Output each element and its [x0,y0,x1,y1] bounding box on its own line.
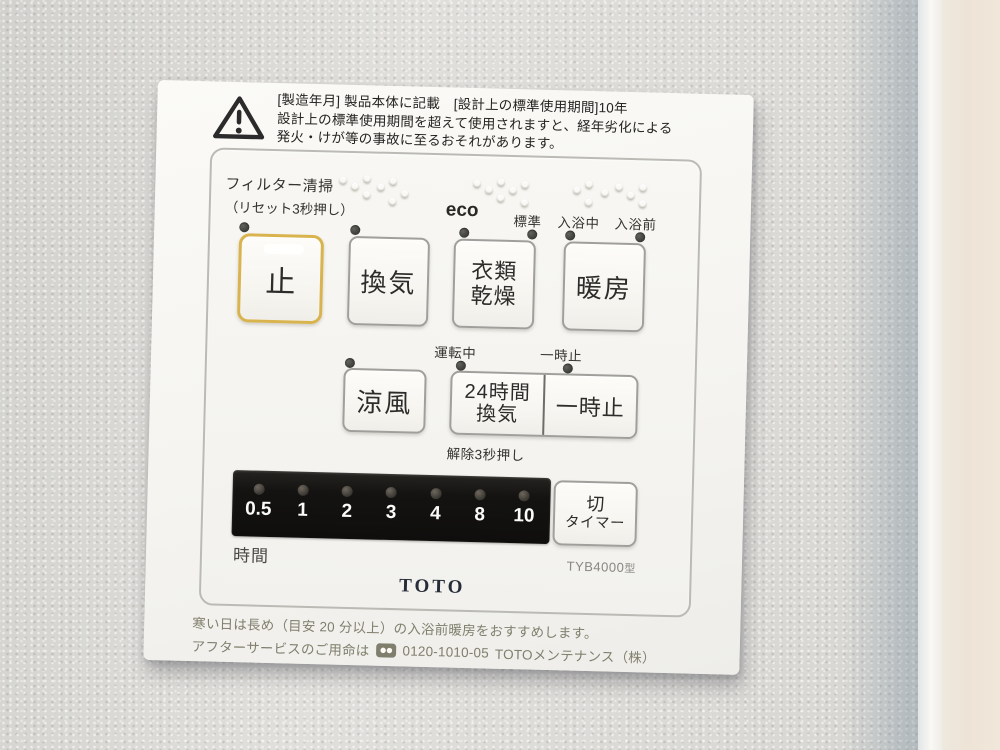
timer-cell: 10 [501,477,547,544]
braille-dot [377,184,384,191]
braille-dot [389,178,396,185]
timer-led-2h [342,486,353,497]
timer-cell: 4 [413,475,459,542]
door-trim [918,0,942,750]
pause-label: 一時止 [540,344,582,365]
pause-button[interactable]: 一時止 [542,375,636,437]
ventilation-24h-pause-button-group: 24時間 換気 一時止 [449,371,639,440]
braille-dot [389,198,396,205]
mode-bathing-label: 入浴中 [557,211,599,232]
timer-off-label-2: タイマー [565,514,625,533]
running-led [456,361,466,371]
mode-standard-label: 標準 [513,210,541,231]
ventilation-24h-label-1: 24時間 [464,380,531,404]
braille-dot [521,181,528,188]
braille-dot [473,180,480,187]
cool-breeze-led [345,358,355,368]
stop-button[interactable]: 止 [237,233,324,324]
braille-dot [401,190,408,197]
release-hint-label: 解除3秒押し [446,442,524,464]
braille-dot [615,184,622,191]
timer-value: 8 [474,504,485,526]
eco-led [459,228,469,238]
timer-cell: 2 [324,472,370,539]
door-edge [942,0,1000,750]
lifespan-warning-text: [製造年月] 製品本体に記載 [設計上の標準使用期間]10年 設計上の標準使用期… [276,91,737,158]
timer-value: 4 [430,503,441,525]
braille-dot [497,179,504,186]
hours-unit-label: 時間 [233,541,270,567]
ventilation-led [350,225,360,235]
timer-cell: 8 [457,476,503,543]
timer-led-3h [386,487,397,498]
timer-value: 1 [297,500,308,522]
timer-value: 2 [341,501,352,523]
ventilation-button[interactable]: 換気 [347,236,430,327]
footer-phone-number: 0120-1010-05 [402,643,489,660]
braille-dot [601,189,608,196]
braille-dot [363,175,370,182]
timer-led-0.5h [253,484,264,495]
braille-dot [639,200,646,207]
braille-dot [497,195,504,202]
braille-dot [363,191,370,198]
timer-cell: 0.5 [235,470,281,537]
filter-clean-label: フィルター清掃 （リセット3秒押し） [225,173,355,219]
heating-button[interactable]: 暖房 [562,241,646,332]
timer-led-4h [430,488,441,499]
freephone-icon [375,642,396,658]
model-number: TYB4000型 [532,558,636,577]
footer-service-suffix: TOTOメンテナンス（株） [495,643,656,667]
ventilation-24h-label-2: 換気 [476,403,519,426]
timer-cell: 1 [280,471,326,538]
clothes-drying-label-1: 衣類 [471,259,518,285]
timer-led-1h [297,485,308,496]
timer-display-bar: 0.5 1 2 3 4 8 [231,470,551,544]
timer-led-8h [475,489,486,500]
timer-value: 0.5 [245,498,272,521]
standard-led [527,229,537,239]
model-name: TYB4000 [566,558,624,574]
ventilation-24h-button[interactable]: 24時間 換気 [451,373,543,435]
braille-dot [639,184,646,191]
timer-off-label-1: 切 [586,495,604,515]
heating-button-label: 暖房 [575,268,632,306]
pause-button-label: 一時止 [555,389,625,423]
mode-prebath-label: 入浴前 [614,213,656,234]
cool-breeze-button[interactable]: 涼風 [342,368,427,434]
warning-triangle-icon [212,93,265,141]
braille-dot [627,192,634,199]
prebath-led [635,232,645,242]
timer-led-10h [519,490,530,501]
stop-button-label: 止 [265,256,296,301]
filter-clean-subtitle: （リセット3秒押し） [225,196,354,219]
braille-dot [485,186,492,193]
braille-dot [585,181,592,188]
braille-dot [585,199,592,206]
timer-cell: 3 [368,473,414,540]
pause-led [563,363,573,373]
filter-clean-title: フィルター清掃 [225,173,355,197]
control-area: フィルター清掃 （リセット3秒押し） eco 標準 入浴中 入浴前 止 換気 衣… [199,147,702,617]
clothes-drying-label-2: 乾燥 [470,283,517,309]
braille-dot [521,199,528,206]
timer-off-button[interactable]: 切 タイマー [552,480,638,547]
eco-label: eco [446,199,479,222]
braille-dot [509,187,516,194]
running-label: 運転中 [434,341,476,362]
clothes-drying-button[interactable]: 衣類 乾燥 [452,239,536,330]
bathroom-dryer-control-panel: [製造年月] 製品本体に記載 [設計上の標準使用期間]10年 設計上の標準使用期… [143,80,753,675]
ventilation-button-label: 換気 [360,262,417,300]
bathing-led [565,230,575,240]
cool-breeze-label: 涼風 [356,382,413,420]
footer-service-prefix: アフターサービスのご用命は [191,635,369,659]
timer-value: 3 [386,502,397,524]
filter-reset-led [239,222,249,232]
model-suffix: 型 [624,563,636,575]
timer-value: 10 [513,505,535,528]
wall-shadow [842,0,918,750]
braille-dot [573,187,580,194]
